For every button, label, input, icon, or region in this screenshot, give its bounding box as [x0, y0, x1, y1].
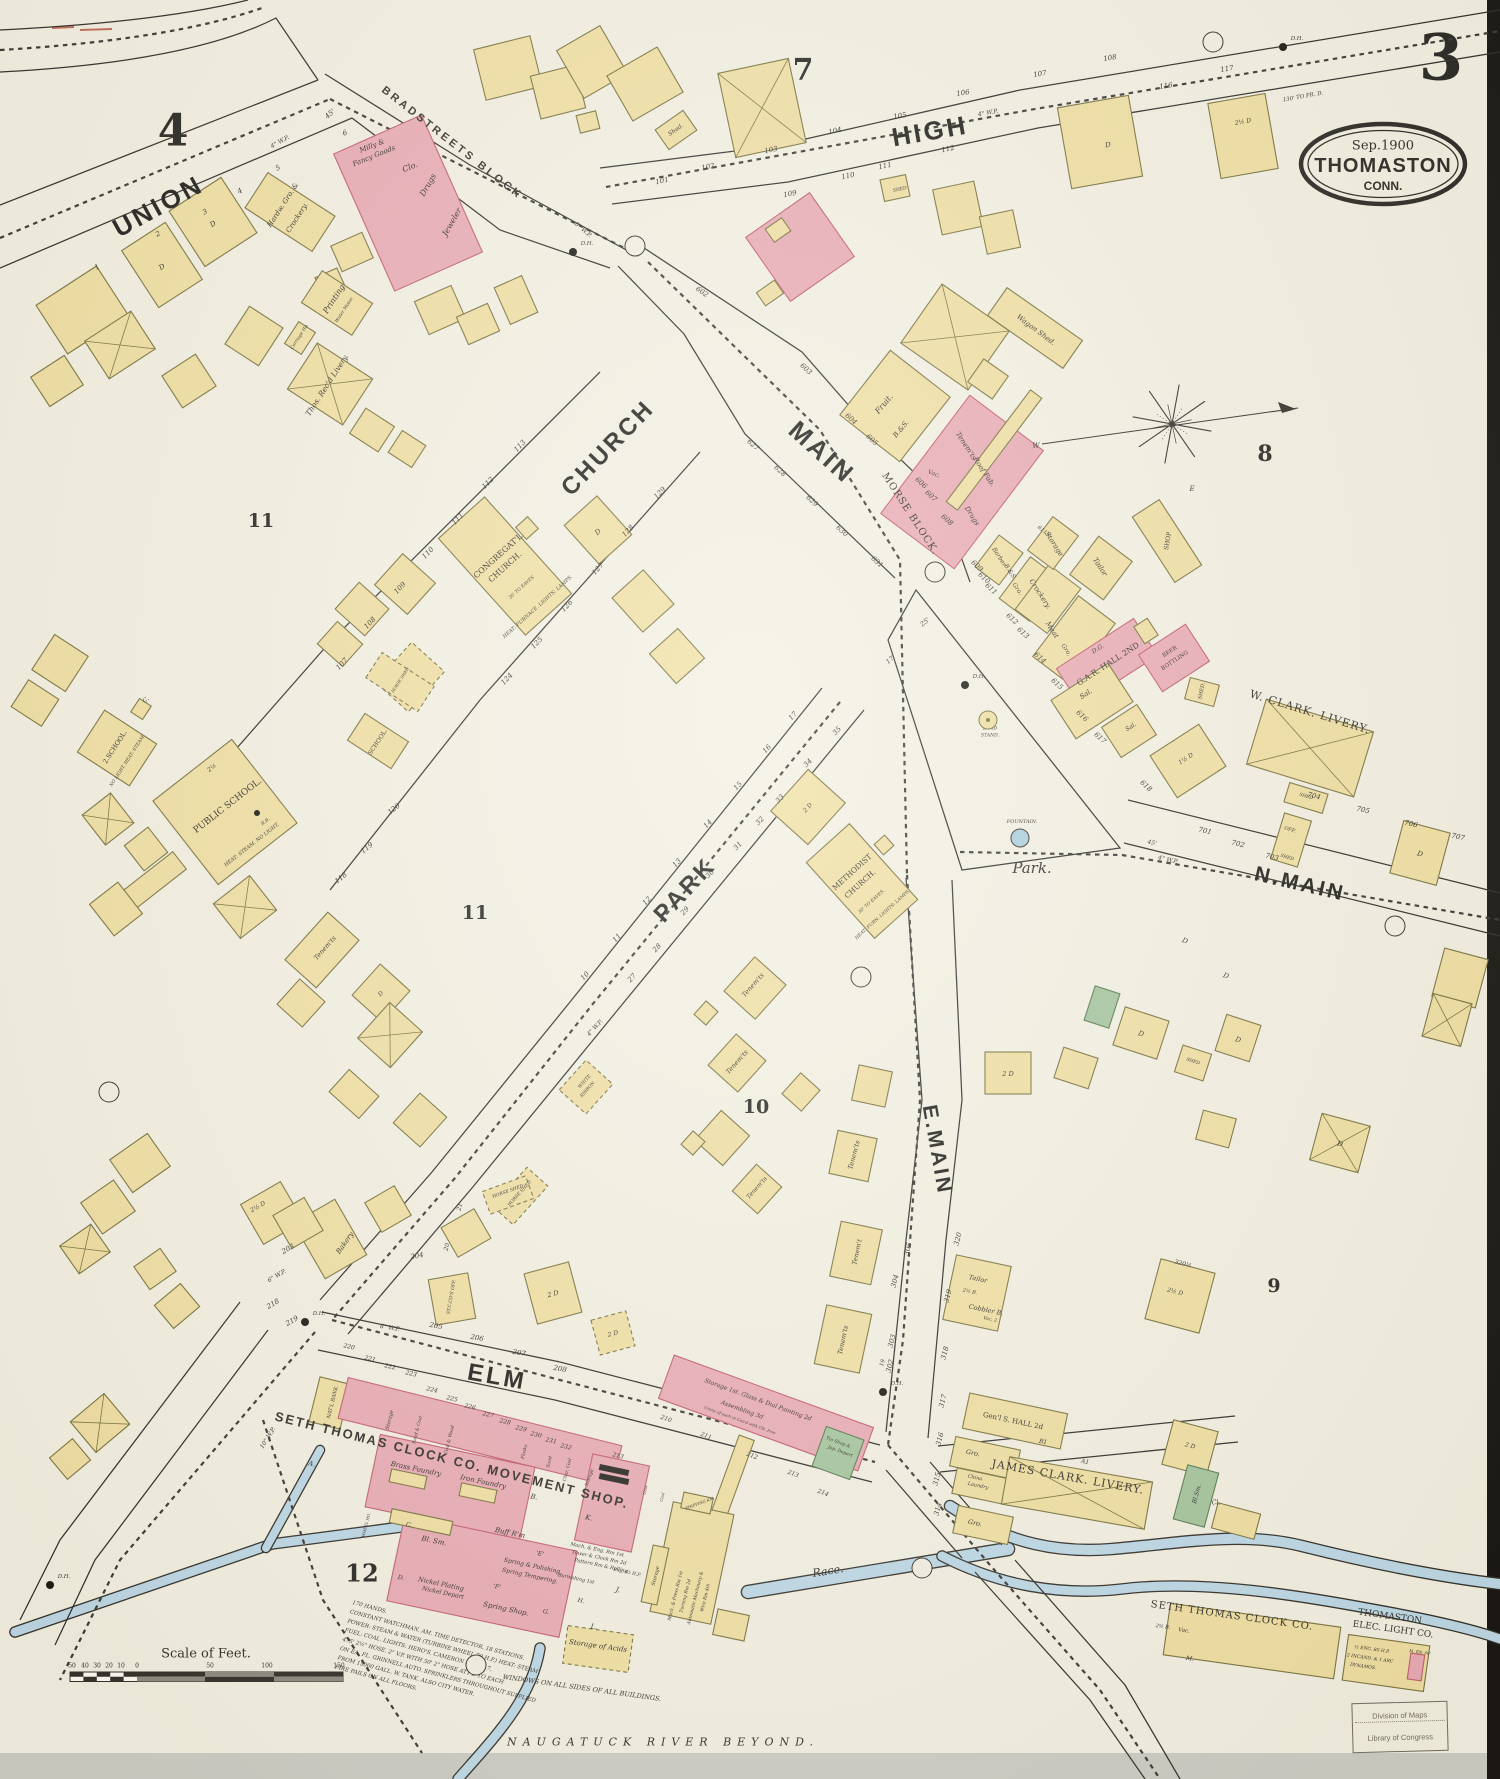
map-label: 34 [802, 757, 814, 769]
map-label: 218 [264, 1297, 281, 1311]
building [874, 835, 894, 855]
map-label: 206 [469, 1333, 485, 1343]
building [694, 1110, 749, 1165]
scale-tick: 10 [117, 1663, 125, 1670]
map-label: 207 [511, 1348, 527, 1358]
street-name: MAIN [783, 415, 861, 490]
scale-tick: 40 [81, 1663, 89, 1670]
map-label: 613 [1015, 626, 1031, 641]
building [213, 876, 276, 939]
map-label: 112 [941, 144, 956, 155]
double-hydrant-icon [301, 1318, 309, 1326]
building [782, 1073, 820, 1111]
map-label: 4" W.P. [585, 1018, 605, 1039]
map-label: J. [613, 1585, 621, 1594]
building [358, 1002, 423, 1067]
circled-number [466, 1655, 486, 1675]
building [474, 36, 543, 100]
map-label: 124 [499, 671, 514, 686]
district-number: 11 [462, 902, 488, 924]
sanborn-map-sheet: Sep.1900 THOMASTON CONN. 3 Scale of Feet… [0, 0, 1500, 1779]
scale-tick: 150 [333, 1663, 345, 1670]
map-label: 45' [1146, 838, 1158, 847]
map-label: 627 [745, 438, 761, 453]
water-pipe-line [332, 702, 840, 1320]
map-label: 221 [363, 1354, 377, 1364]
building [110, 1133, 171, 1192]
map-label: 318 [939, 1345, 950, 1361]
map-label: NAUGATUCK RIVER BEYOND. [506, 1736, 819, 1749]
scale-tick: 0 [135, 1663, 139, 1670]
map-label: 110 [420, 545, 435, 561]
map-label: 630 [834, 524, 850, 539]
map-label: 618 [1138, 779, 1154, 794]
map-label: 305 [902, 1241, 913, 1257]
map-label: 106 [956, 88, 971, 98]
building [1208, 94, 1278, 179]
hydrant-label: D.H. [312, 1311, 326, 1317]
building [388, 430, 426, 467]
map-label: 31 [732, 840, 744, 852]
double-hydrant-icon [46, 1581, 54, 1589]
stamp-line-1: Division of Maps [1355, 1710, 1445, 1723]
map-label: M. [1185, 1655, 1195, 1663]
map-label: 104 [828, 126, 843, 137]
map-label: 220 [342, 1342, 356, 1352]
map-label: 101 [655, 176, 670, 187]
building [494, 276, 538, 325]
compass-ray [1165, 427, 1172, 463]
map-label: 4 [235, 186, 244, 196]
scale-tick: 50 [206, 1663, 214, 1670]
building [154, 1284, 199, 1329]
double-hydrant-icon [569, 248, 577, 256]
map-label: Coal [658, 1491, 665, 1502]
building [1422, 994, 1472, 1047]
map-label: 317 [937, 1393, 948, 1409]
map-label: 32 [754, 815, 766, 827]
building [979, 210, 1020, 254]
map-label: 320 [952, 1231, 963, 1247]
hydrant-label: D.H. [972, 674, 986, 680]
water-pipe-line [60, 1332, 315, 1680]
map-label: 120 [386, 801, 402, 816]
building [134, 1248, 176, 1289]
map-label: 612 [1004, 612, 1020, 627]
circled-number [99, 1082, 119, 1102]
district-number: 11 [248, 510, 274, 532]
scale-bar [70, 1672, 343, 1682]
district-number: 10 [743, 1096, 769, 1118]
map-label: 116 [1159, 81, 1174, 91]
scale-tick: 50 [68, 1663, 76, 1670]
map-label: 17 [884, 654, 896, 666]
building [31, 355, 84, 406]
building [225, 306, 283, 366]
map-label: 705 [1356, 805, 1371, 816]
scan-right-edge [1487, 0, 1500, 1779]
map-label: 109 [783, 189, 798, 200]
map-label: 113 [512, 438, 527, 454]
map-label: 111 [878, 161, 893, 172]
map-label: 314 [932, 1502, 943, 1517]
building [245, 173, 335, 252]
building [1407, 1653, 1424, 1681]
map-label: 103 [764, 145, 779, 156]
map-label: 35 [831, 725, 843, 737]
map-label: H. [576, 1597, 586, 1606]
paper-bottom-edge [0, 1753, 1487, 1779]
building [953, 1505, 1014, 1544]
street-name: ELM [465, 1359, 528, 1396]
page-number: 3 [1419, 21, 1464, 96]
map-label: Coal [641, 1484, 648, 1495]
map-label: D [1221, 971, 1230, 981]
building [162, 354, 216, 408]
map-label: 119 [359, 840, 375, 855]
building [1196, 1110, 1237, 1148]
map-label: L. [589, 1622, 598, 1631]
map-label: 118 [333, 870, 349, 885]
map-label: 130' TO FR. D. [1282, 90, 1324, 103]
double-hydrant-icon [961, 681, 969, 689]
circled-number [925, 562, 945, 582]
map-label: Park. [1011, 859, 1051, 877]
compass-ray [1174, 401, 1204, 422]
water-pipe-line [0, 8, 262, 50]
title-badge: Sep.1900 THOMASTON CONN. [1301, 124, 1465, 204]
map-label: W [1032, 442, 1040, 450]
circled-number [625, 236, 645, 256]
map-label: 28 [650, 942, 663, 955]
compass-ray [1133, 417, 1169, 424]
map-canvas: Sep.1900 THOMASTON CONN. 3 Scale of Feet… [0, 0, 1500, 1779]
map-label: D [1180, 936, 1189, 946]
map-label: 117 [1220, 64, 1235, 74]
map-label: 17 [787, 710, 799, 722]
water-pipes [0, 8, 1500, 1779]
building [365, 1186, 411, 1232]
building [393, 1093, 447, 1147]
map-label: 6" W.P. [266, 1268, 287, 1284]
map-label: 108 [1103, 53, 1118, 63]
map-label: A1 [1079, 1458, 1089, 1466]
scale-tick: 30 [93, 1663, 101, 1670]
map-label: 129 [652, 485, 667, 501]
scale-tick: 20 [105, 1663, 113, 1670]
library-stamp: Division of Maps Library of Congress [1351, 1701, 1448, 1753]
map-label: 27 [625, 972, 638, 985]
waterways [15, 1450, 1500, 1779]
map-label: 102 [701, 162, 716, 173]
map-label: 110 [841, 171, 856, 182]
map-label: 205 [428, 1321, 444, 1331]
building [1054, 1047, 1098, 1089]
street-name: CHURCH [556, 395, 660, 502]
hydrant-label: D.H. [1290, 36, 1304, 42]
map-label: 125 [529, 635, 544, 651]
map-label: 45' [323, 107, 337, 121]
building [350, 408, 395, 452]
compass-ray [1175, 425, 1211, 432]
map-label: Cl. [1212, 1500, 1221, 1507]
building [933, 181, 984, 235]
road-edge [55, 1330, 268, 1645]
hydrant-label: D.H. [890, 1381, 904, 1387]
scale-title: Scale of Feet. [161, 1647, 251, 1662]
building [649, 628, 704, 683]
building [414, 285, 465, 334]
map-label: E [1188, 485, 1194, 493]
street-name: N.MAIN [1252, 862, 1347, 905]
map-label: 213 [785, 1468, 799, 1479]
hydrant-label: D.H. [57, 1574, 71, 1580]
school-bell-icon [254, 810, 260, 816]
map-label: 107 [1033, 69, 1048, 79]
map-label: 15 [732, 780, 744, 792]
circled-number [1203, 32, 1223, 52]
circled-number [851, 967, 871, 987]
compass-arrow-icon [1278, 402, 1296, 413]
map-label: 16 [761, 743, 773, 755]
map-label: 303 [886, 1333, 897, 1349]
archive-marks [52, 27, 112, 30]
compass-ray [1174, 426, 1195, 456]
stamp-line-2: Library of Congress [1355, 1732, 1445, 1744]
map-label: 628 [772, 464, 788, 479]
map-label: 8" W.P. [379, 1323, 400, 1333]
map-label: 629 [804, 494, 820, 509]
map-label: 21 [455, 1202, 464, 1212]
map-label: 2 D [1001, 1070, 1014, 1078]
badge-city: THOMASTON [1314, 155, 1452, 177]
map-label: A. [307, 1459, 317, 1469]
district-number: 8 [1257, 441, 1272, 467]
compass-ray [1149, 391, 1170, 421]
building [559, 1060, 613, 1114]
map-label: 208 [552, 1364, 568, 1374]
map-label: 5 [274, 163, 282, 172]
map-label: 127 [590, 561, 605, 577]
map-label: 211 [698, 1430, 712, 1441]
building [331, 232, 373, 271]
map-label: 611 [983, 582, 998, 597]
building [576, 111, 600, 133]
map-label: 214 [815, 1487, 829, 1498]
building [329, 1069, 379, 1118]
map-label: 10" W.P. [259, 1426, 278, 1450]
map-label: 10 [579, 970, 591, 982]
double-hydrant-icon [1279, 43, 1287, 51]
map-label: 315 [931, 1471, 942, 1487]
building [301, 271, 372, 336]
water-pipe-line [648, 262, 907, 875]
district-number: 7 [793, 53, 814, 88]
map-label: 210 [658, 1413, 672, 1424]
badge-state: CONN. [1364, 179, 1403, 193]
building [746, 193, 855, 302]
district-number: 4 [158, 106, 189, 157]
building [456, 303, 499, 344]
building [1057, 95, 1142, 188]
map-label: 13 [671, 857, 683, 869]
map-label: 112 [480, 475, 495, 491]
map-label: 25' [918, 616, 932, 629]
building [1084, 986, 1120, 1028]
district-number: 9 [1267, 1275, 1280, 1297]
hydrant-label: D.H. [580, 241, 594, 247]
fountain-icon [1011, 829, 1029, 847]
map-label: 707 [1451, 832, 1466, 843]
map-label: 602 [694, 285, 710, 300]
scale-tick: 100 [261, 1663, 273, 1670]
map-label: 701 [1198, 826, 1213, 837]
building [82, 793, 134, 845]
district-number: 12 [345, 1559, 378, 1588]
map-label: 703 [1265, 852, 1280, 863]
map-label: STAND. [981, 733, 999, 739]
building [11, 680, 59, 726]
map-label: 14 [702, 818, 714, 830]
circled-number [1385, 916, 1405, 936]
map-label: 11 [611, 932, 623, 944]
road-edge [0, 0, 248, 30]
building [713, 1609, 750, 1641]
building [50, 1439, 91, 1480]
map-label: 702 [1231, 839, 1246, 850]
building [70, 1394, 129, 1453]
map-label: 304 [889, 1274, 900, 1289]
building [694, 1001, 718, 1025]
circled-number [912, 1558, 932, 1578]
compass-ray [1139, 426, 1169, 447]
street-name: E.MAIN [918, 1103, 957, 1197]
map-label: 6 [341, 128, 349, 137]
map-label: 222 [383, 1362, 397, 1372]
map-label: 4" W.P. [269, 134, 291, 151]
building [852, 1065, 893, 1107]
map-label: 224 [425, 1385, 439, 1395]
map-label: B. [529, 1492, 539, 1502]
map-label: 316 [934, 1431, 945, 1447]
building [612, 570, 674, 632]
badge-date: Sep.1900 [1352, 139, 1414, 154]
compass-ray [1173, 385, 1180, 421]
map-label: 219 [283, 1314, 300, 1328]
building [32, 634, 88, 691]
map-label: 631 [869, 555, 884, 570]
map-label: FOUNTAIN. [1006, 819, 1038, 825]
double-hydrant-icon [879, 1388, 887, 1396]
map-label: 204 [409, 1251, 425, 1261]
